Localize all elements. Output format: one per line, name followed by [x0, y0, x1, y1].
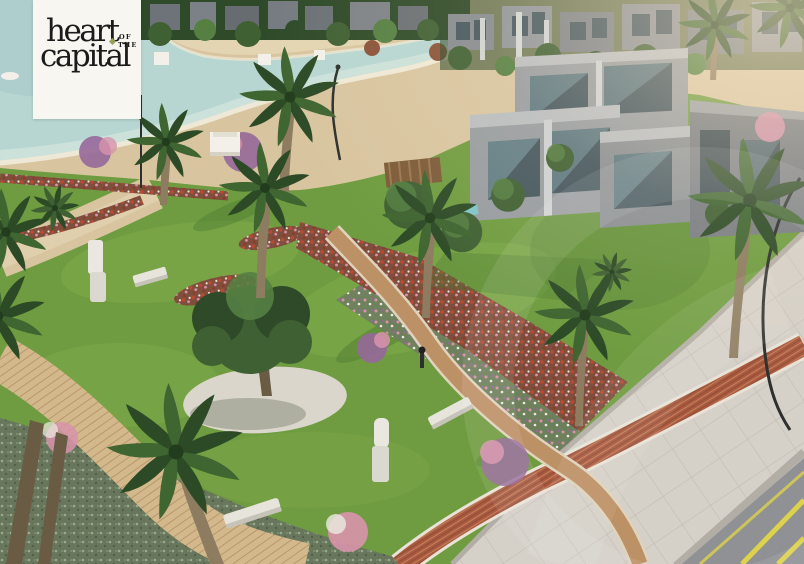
heart-of-capital-logo: heart OF THE capital	[33, 0, 141, 119]
architectural-render: heart OF THE capital	[0, 0, 804, 564]
logo-word-capital: capital	[40, 41, 129, 72]
